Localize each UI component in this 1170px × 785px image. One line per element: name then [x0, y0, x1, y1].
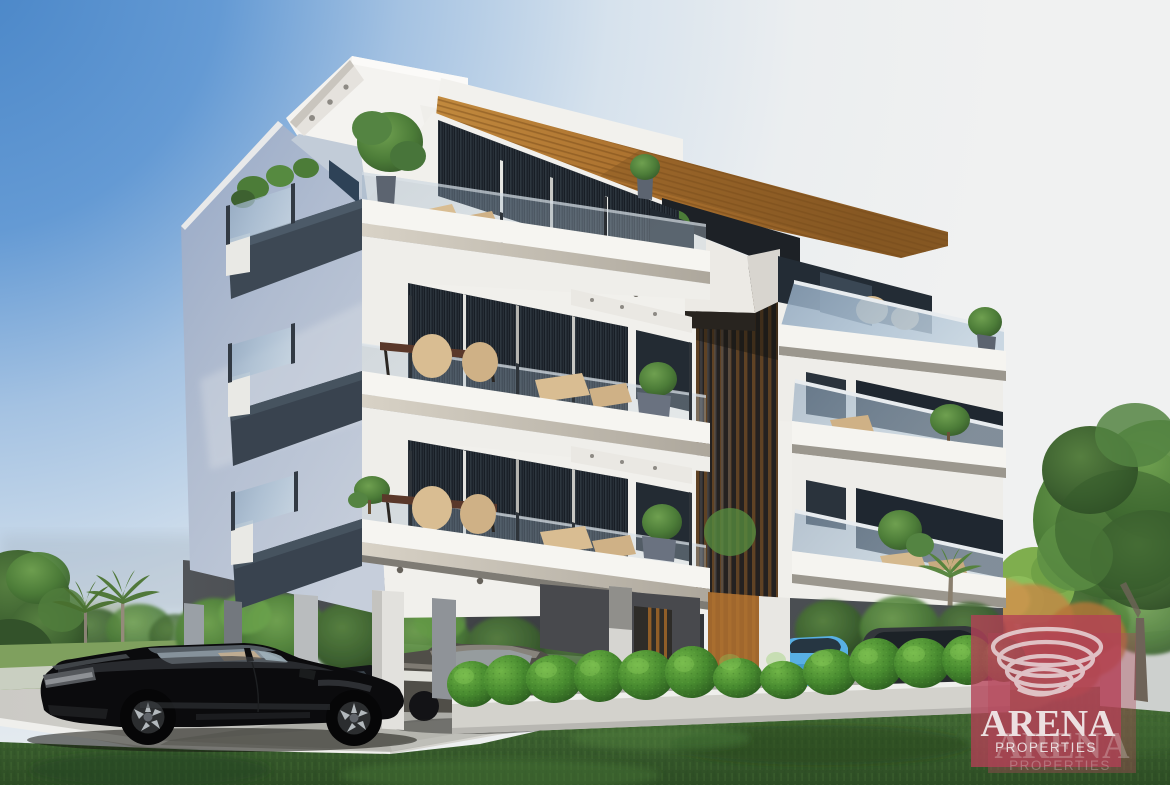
svg-text:PROPERTIES: PROPERTIES [995, 740, 1097, 755]
svg-text:PROPERTIES: PROPERTIES [1009, 758, 1111, 773]
